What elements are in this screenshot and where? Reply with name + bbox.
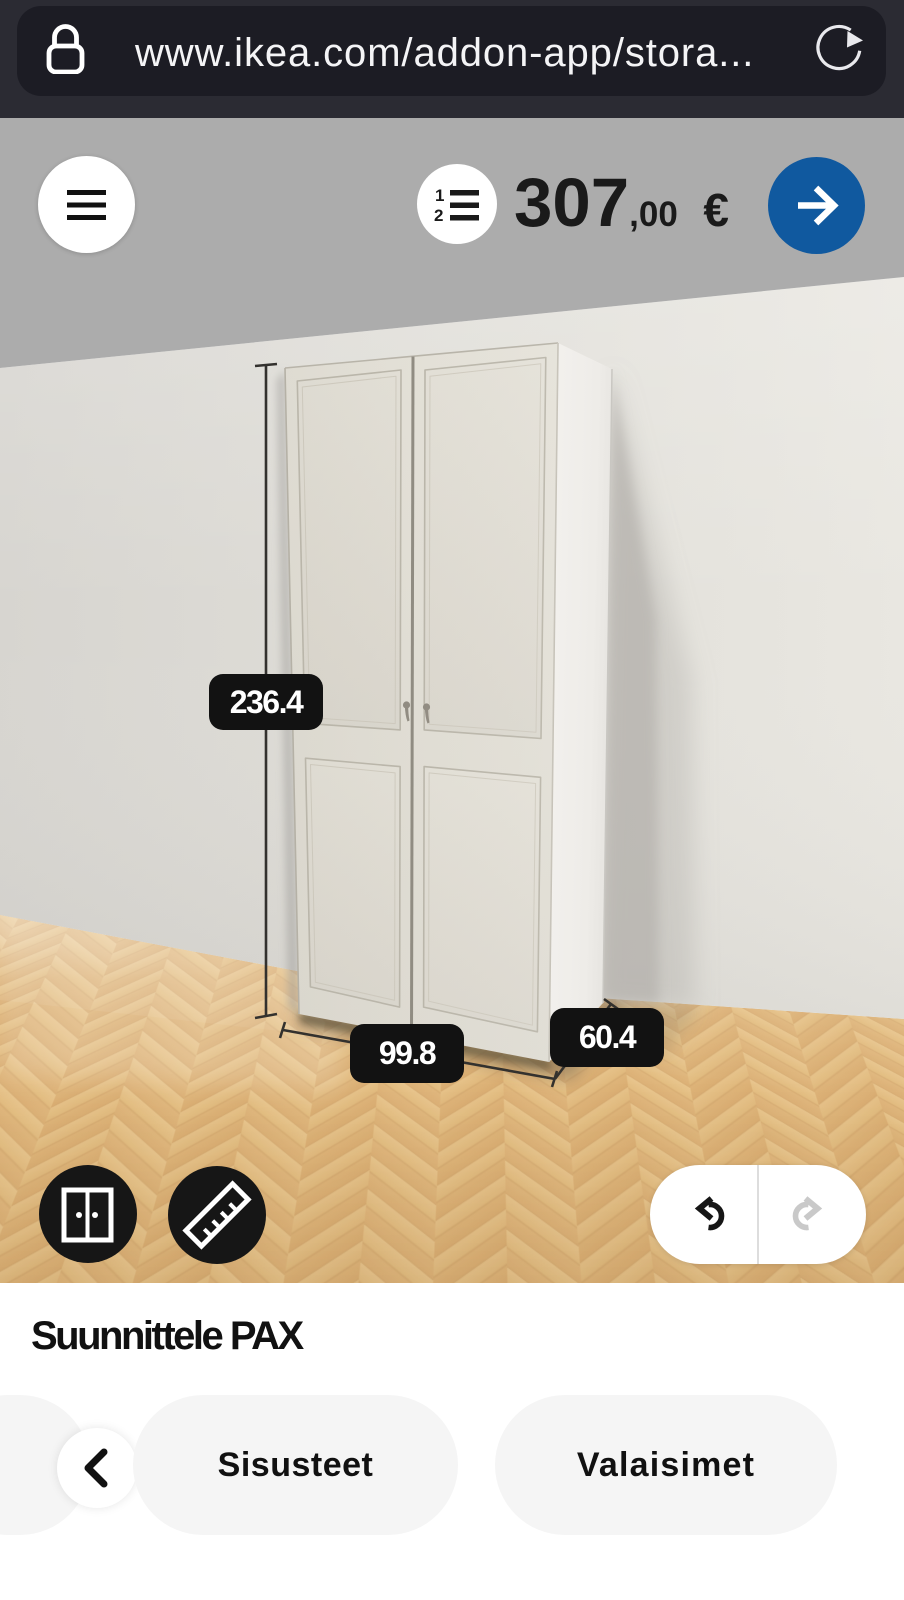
svg-text:236.4: 236.4 [230,684,304,720]
svg-text:2: 2 [434,206,443,225]
svg-text:99.8: 99.8 [379,1035,436,1071]
svg-text:1: 1 [435,186,444,205]
svg-text:60.4: 60.4 [579,1019,637,1055]
